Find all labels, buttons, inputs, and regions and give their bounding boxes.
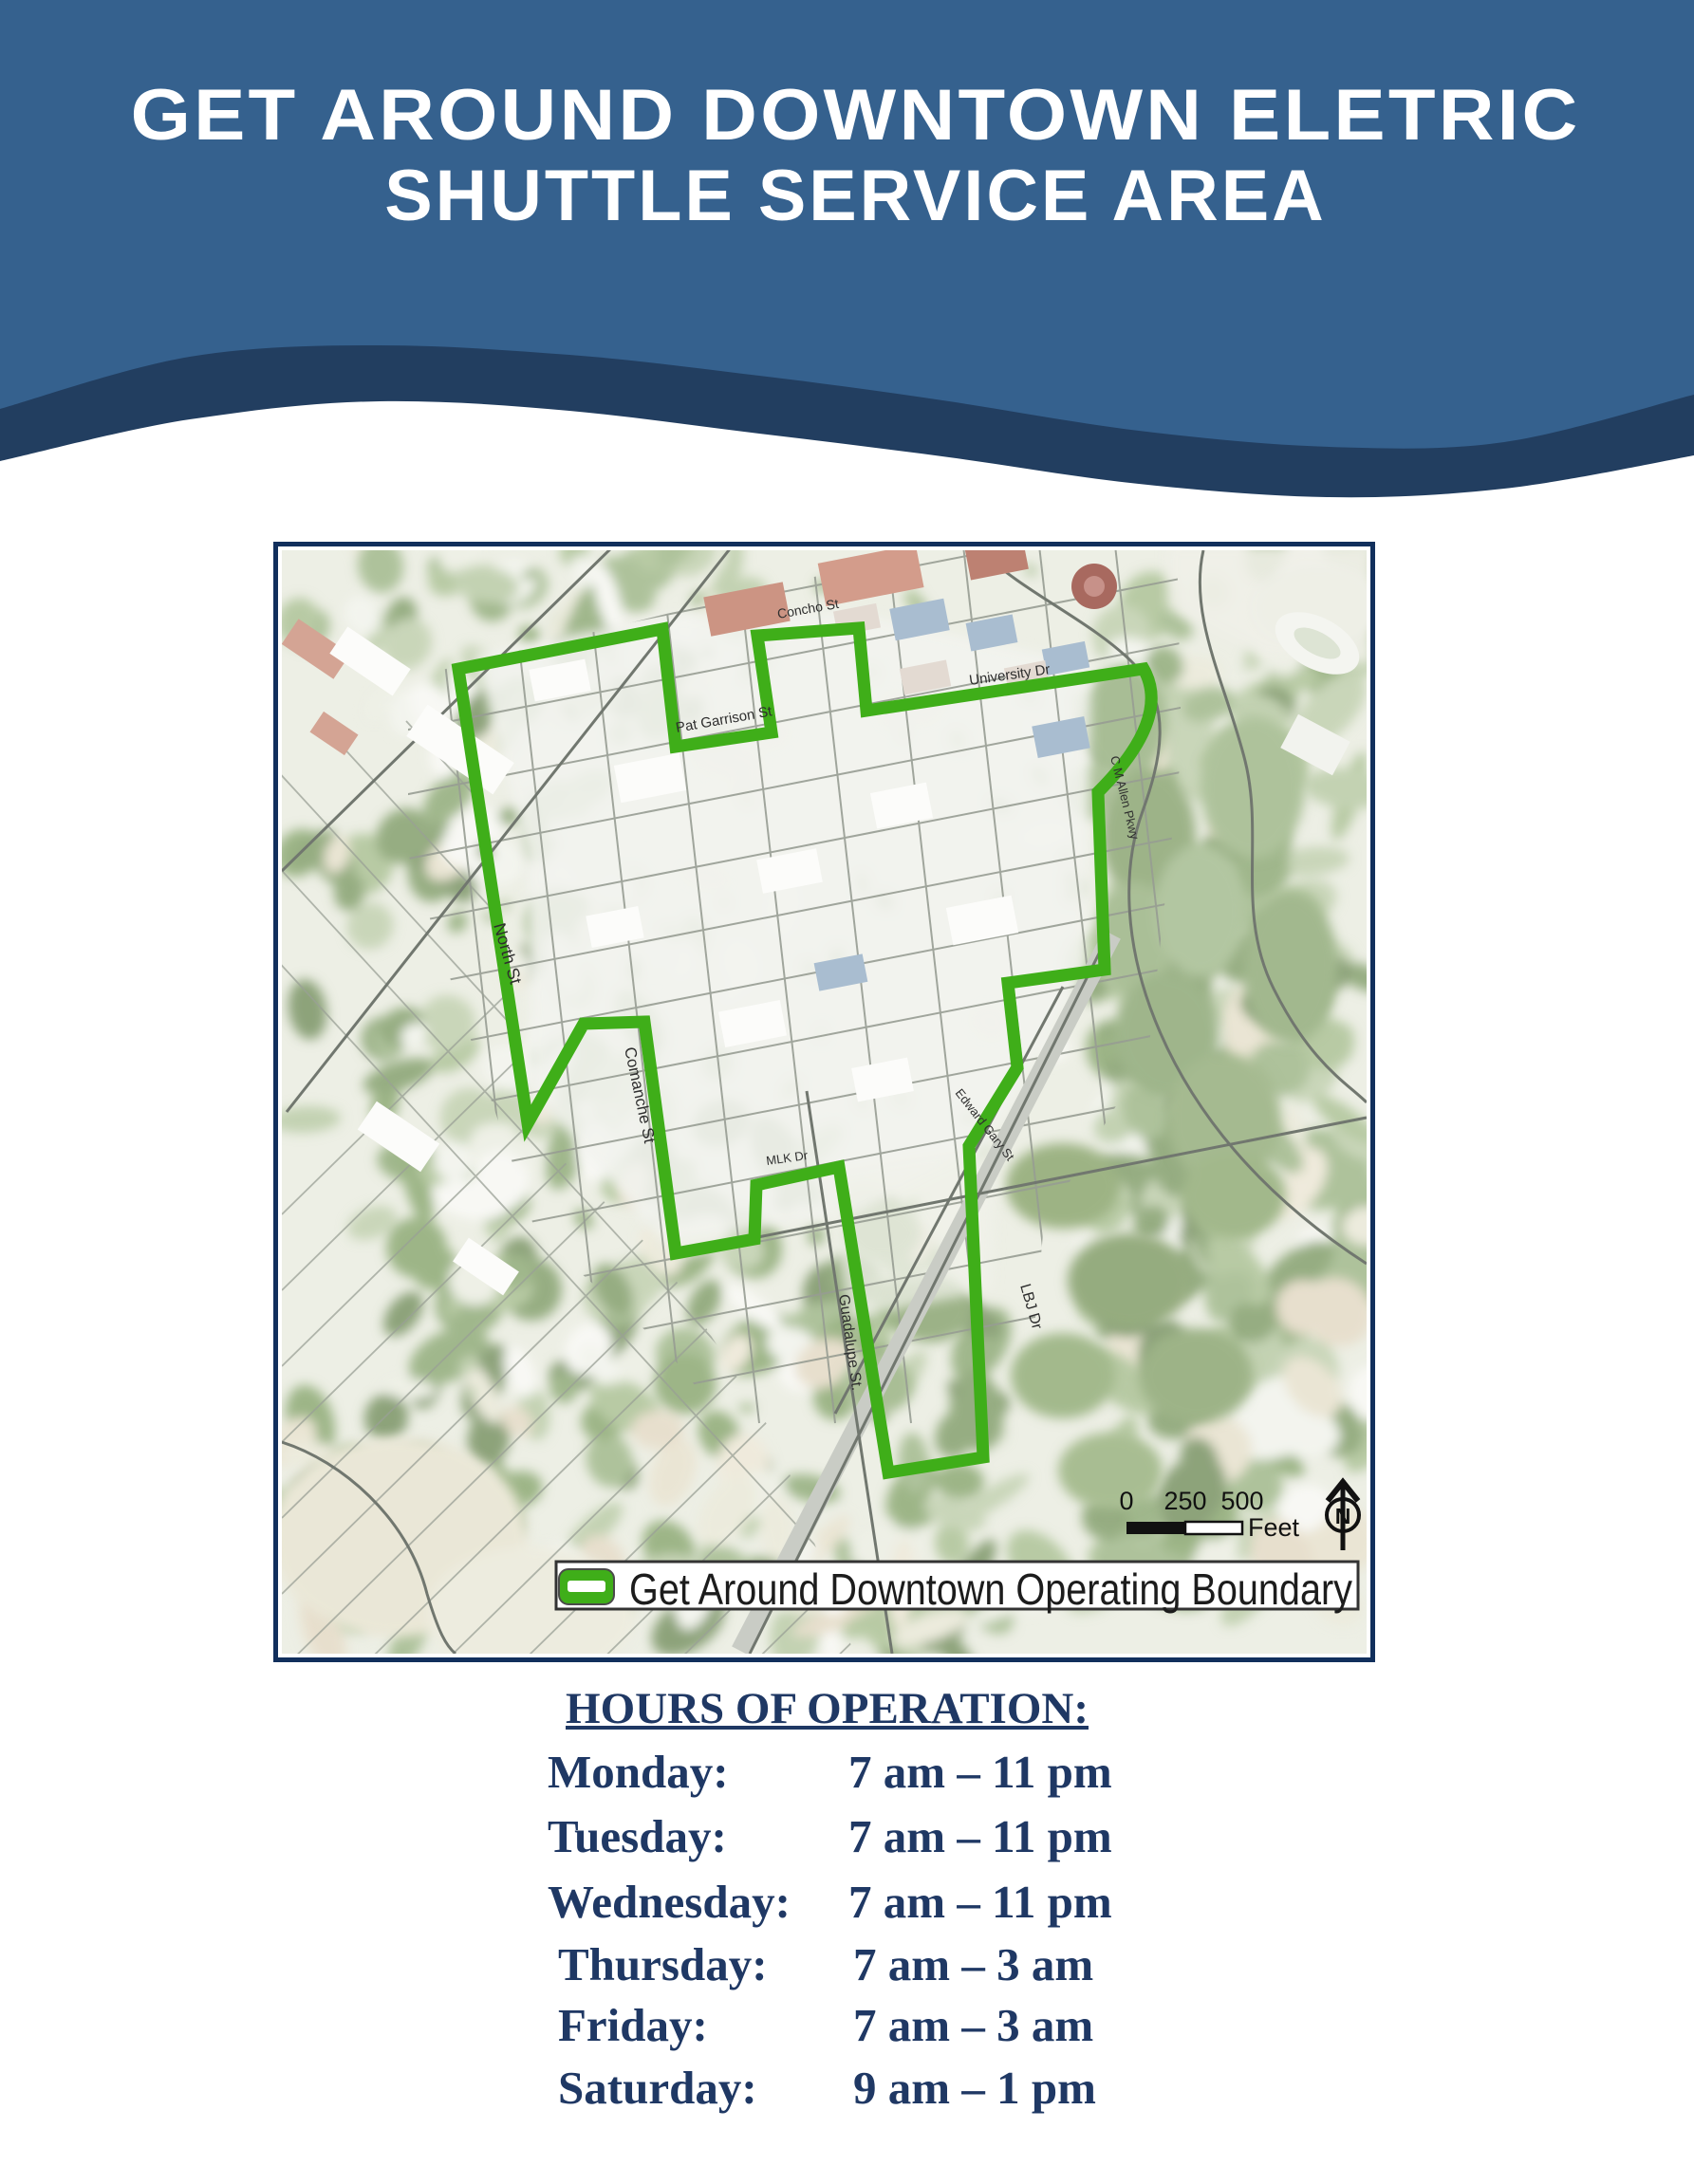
svg-text:250: 250 [1163, 1487, 1206, 1515]
svg-text:500: 500 [1220, 1487, 1263, 1515]
svg-text:Feet: Feet [1248, 1513, 1300, 1542]
svg-text:N: N [1335, 1504, 1351, 1528]
svg-text:Get Around Downtown Operating: Get Around Downtown Operating Boundary [629, 1564, 1352, 1614]
svg-text:0: 0 [1119, 1487, 1133, 1515]
